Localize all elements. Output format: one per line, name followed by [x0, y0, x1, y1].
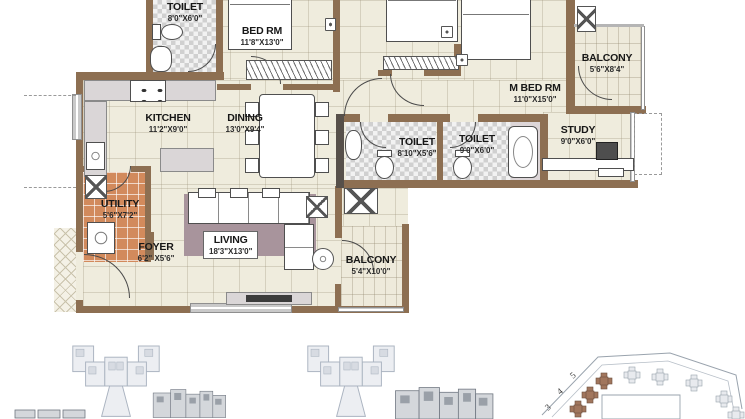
wall-segment [478, 114, 548, 122]
tv-icon [246, 295, 292, 302]
wall-segment [283, 84, 340, 90]
wardrobe-icon [246, 60, 332, 80]
cushion-icon [198, 188, 216, 198]
room-name: FOYER [121, 241, 191, 253]
shaft-icon [344, 188, 378, 214]
entry-landing-hatch [54, 228, 77, 312]
cushion-icon [230, 188, 248, 198]
room-dims: 11'2"X9'0" [133, 125, 203, 134]
kitchen-platform [160, 148, 214, 172]
room-name: DINING [210, 112, 280, 124]
room-label-balcony-top: BALCONY 5'6"X8'4" [572, 52, 642, 74]
stool-icon [598, 168, 624, 177]
chair-icon [315, 158, 329, 173]
sofa-icon [284, 224, 314, 270]
room-name: TOILET [150, 1, 220, 13]
cushion-icon [262, 188, 280, 198]
room-name: BALCONY [336, 254, 406, 266]
bed-blanket-line [230, 4, 290, 5]
stove-icon [130, 80, 166, 102]
chair-icon [315, 102, 329, 117]
site-central-plot [602, 395, 680, 419]
washbasin-icon [345, 130, 362, 160]
wall-segment [76, 72, 224, 80]
wall-segment [335, 186, 342, 238]
room-dims: 6'2" X5'6" [121, 254, 191, 263]
key-plan-fragment [14, 409, 86, 419]
wall-segment [388, 114, 450, 122]
washbasin-icon [150, 46, 172, 72]
wall-segment [340, 180, 548, 188]
window-icon [72, 94, 82, 140]
wc-icon [453, 156, 472, 179]
site-other-towers [624, 367, 744, 419]
door-opening [76, 252, 83, 300]
chair-icon [315, 130, 329, 145]
column-icon [456, 54, 468, 66]
room-dims: 5'6"X7'2" [85, 211, 155, 220]
room-name: BALCONY [572, 52, 642, 64]
wall-segment [333, 0, 340, 92]
washing-machine-icon [87, 222, 115, 254]
room-label-utility: UTILITY 5'6"X7'2" [85, 198, 155, 220]
dining-table-icon [259, 94, 315, 178]
bed-blanket-line [388, 0, 456, 1]
room-name: LIVING [209, 234, 252, 246]
room-dims: 11'0"X15'0" [495, 95, 575, 104]
tower-number-3: 3 [543, 402, 553, 413]
room-label-m-bed-rm: M BED RM 11'0"X15'0" [495, 82, 575, 104]
room-label-foyer: FOYER 6'2" X5'6" [121, 241, 191, 263]
chair-icon [245, 158, 259, 173]
tower-number-4: 4 [555, 386, 565, 397]
bed-icon [461, 0, 531, 60]
site-plan: 3 4 5 [540, 349, 745, 419]
wc-tank-icon [152, 24, 161, 40]
wall-segment [335, 284, 341, 308]
extension-dashed-line [24, 95, 76, 96]
room-dims: 13'0"X9'4" [210, 125, 280, 134]
wall-segment [217, 84, 251, 90]
room-label-toilet-master: TOILET 9'0"X6'0" [442, 133, 512, 155]
room-dims: 18'3"X13'0" [209, 247, 252, 256]
room-name: UTILITY [85, 198, 155, 210]
key-plan-tower-1 [68, 337, 164, 419]
wall-shaft [336, 114, 344, 188]
bed-blanket-line [463, 14, 529, 15]
room-dims: 11'8"X13'0" [227, 38, 297, 47]
room-label-living: LIVING 18'3"X13'0" [203, 231, 258, 259]
room-name: TOILET [442, 133, 512, 145]
room-dims: 5'6"X8'4" [572, 65, 642, 74]
wc-icon [375, 156, 394, 179]
open-area-dashed-outline [634, 113, 662, 175]
utility-sink-icon [85, 175, 107, 199]
column-icon [441, 26, 453, 38]
key-plan-tower-2 [303, 337, 399, 419]
room-label-kitchen: KITCHEN 11'2"X9'0" [133, 112, 203, 134]
side-table-icon [312, 248, 334, 270]
floor-plan-canvas: TOILET 8'0"X6'0" BED RM 11'8"X13'0" M BE… [0, 0, 745, 419]
room-name: BED RM [227, 25, 297, 37]
planter-icon [577, 6, 596, 32]
room-label-study: STUDY 9'0"X6'0" [543, 124, 613, 146]
room-dims: 9'0"X6'0" [442, 146, 512, 155]
bathtub-basin-icon [513, 136, 533, 168]
key-plan-unit-2 [390, 386, 500, 419]
column-icon [325, 18, 336, 31]
wall-segment [548, 180, 638, 188]
room-name: STUDY [543, 124, 613, 136]
key-plan-unit-1 [152, 388, 228, 419]
room-name: KITCHEN [133, 112, 203, 124]
room-dims: 9'0"X6'0" [543, 137, 613, 146]
wardrobe-icon [383, 56, 459, 70]
kitchen-sink-icon [86, 142, 105, 170]
wc-icon [161, 24, 183, 40]
room-name: M BED RM [495, 82, 575, 94]
wall-segment [131, 166, 146, 172]
room-label-toilet: TOILET 8'0"X6'0" [150, 1, 220, 23]
room-label-balcony-bottom: BALCONY 5'4"X10'0" [336, 254, 406, 276]
balcony-railing-icon [338, 307, 404, 312]
room-dims: 8'0"X6'0" [150, 14, 220, 23]
extension-dashed-line [24, 187, 76, 188]
plant-icon [306, 196, 328, 218]
room-label-dining: DINING 13'0"X9'4" [210, 112, 280, 134]
room-label-bed-rm: BED RM 11'8"X13'0" [227, 25, 297, 47]
room-dims: 5'4"X10'0" [336, 267, 406, 276]
